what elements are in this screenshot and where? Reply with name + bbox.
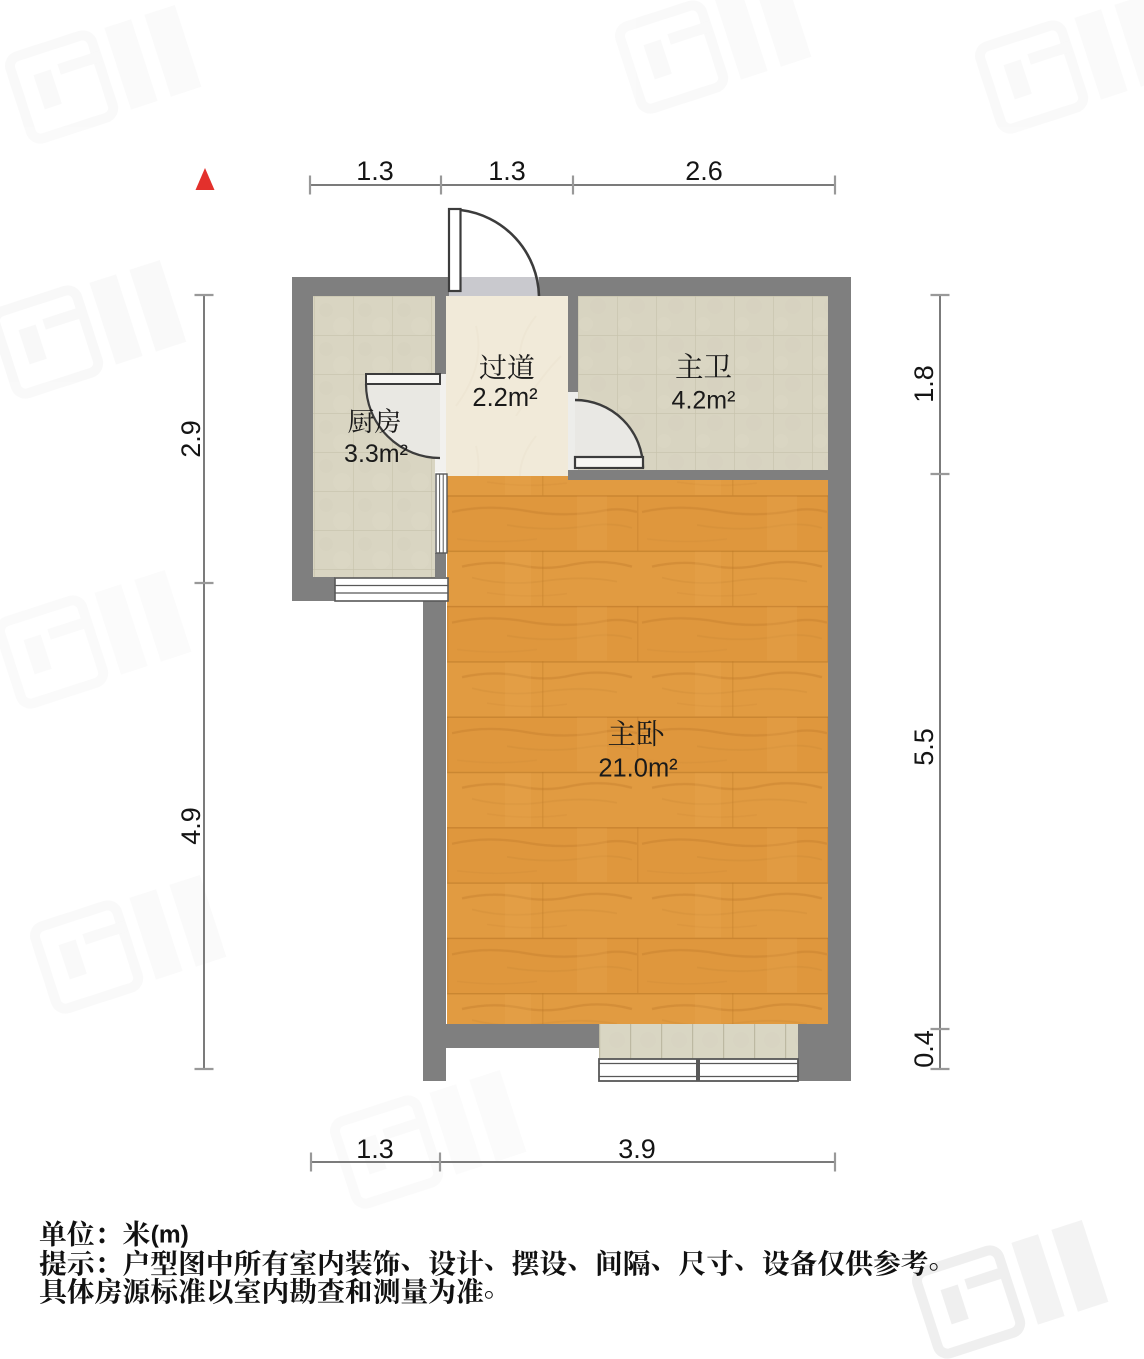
svg-text:4.9: 4.9: [176, 807, 206, 845]
svg-text:1.8: 1.8: [909, 365, 939, 403]
svg-text:2.2m²: 2.2m²: [472, 384, 537, 412]
svg-text:1.3: 1.3: [356, 1134, 394, 1164]
svg-text:2.6: 2.6: [685, 156, 723, 186]
svg-text:4.2m²: 4.2m²: [672, 387, 736, 415]
svg-text:3.3m²: 3.3m²: [344, 440, 408, 468]
svg-text:5.5: 5.5: [909, 728, 939, 766]
svg-text:21.0m²: 21.0m²: [598, 755, 677, 783]
svg-text:3.9: 3.9: [618, 1134, 656, 1164]
svg-text:2.9: 2.9: [176, 420, 206, 458]
svg-text:0.4: 0.4: [909, 1030, 939, 1068]
svg-text:1.3: 1.3: [488, 156, 526, 186]
svg-text:1.3: 1.3: [356, 156, 394, 186]
